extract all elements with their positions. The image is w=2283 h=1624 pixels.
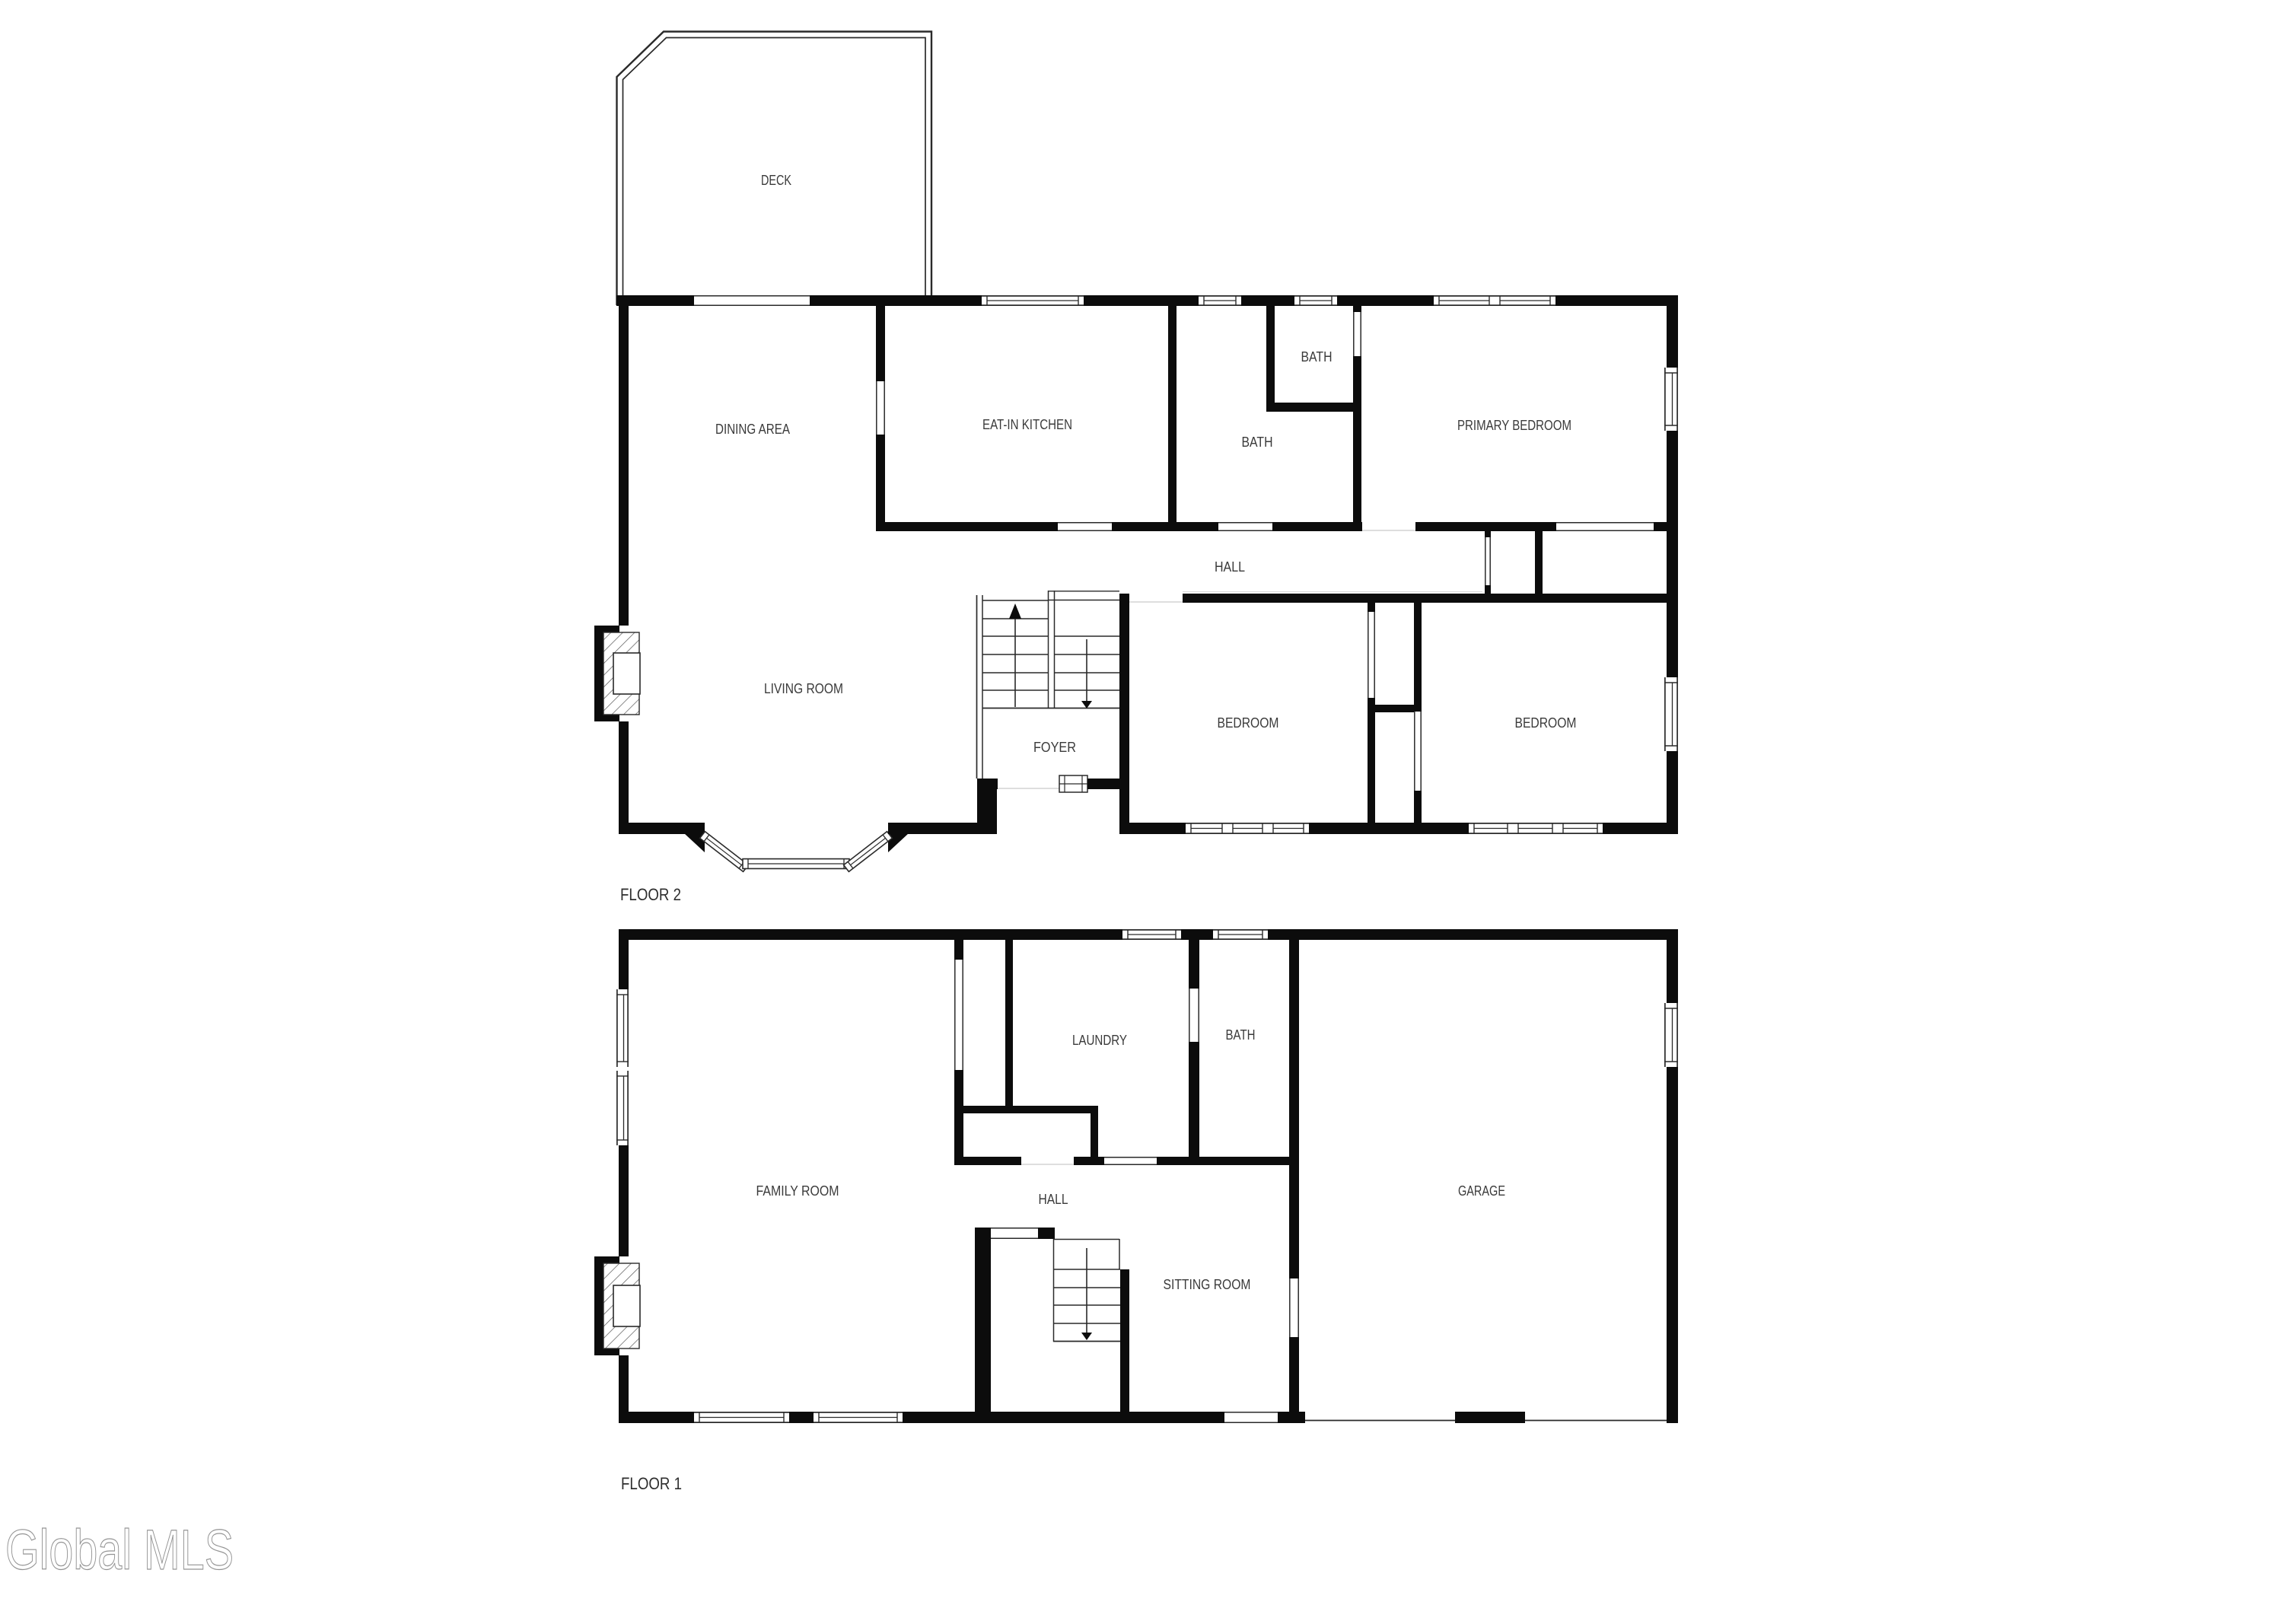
svg-text:GARAGE: GARAGE (1458, 1183, 1505, 1199)
svg-text:DINING AREA: DINING AREA (715, 422, 790, 437)
svg-text:FLOOR 2: FLOOR 2 (620, 885, 681, 904)
svg-text:HALL: HALL (1039, 1192, 1068, 1207)
svg-text:SITTING ROOM: SITTING ROOM (1164, 1277, 1251, 1292)
svg-text:BATH: BATH (1242, 435, 1273, 450)
svg-text:FLOOR 1: FLOOR 1 (621, 1474, 682, 1493)
svg-text:FAMILY ROOM: FAMILY ROOM (756, 1183, 839, 1199)
svg-text:HALL: HALL (1215, 559, 1245, 575)
svg-text:FOYER: FOYER (1033, 740, 1076, 755)
svg-text:LIVING ROOM: LIVING ROOM (764, 681, 843, 696)
svg-text:LAUNDRY: LAUNDRY (1072, 1033, 1127, 1048)
svg-text:EAT-IN KITCHEN: EAT-IN KITCHEN (982, 417, 1072, 432)
svg-text:BEDROOM: BEDROOM (1515, 715, 1577, 731)
svg-text:DECK: DECK (761, 173, 791, 188)
svg-text:PRIMARY BEDROOM: PRIMARY BEDROOM (1457, 418, 1571, 433)
svg-text:BEDROOM: BEDROOM (1218, 715, 1279, 731)
svg-text:Global MLS: Global MLS (5, 1518, 234, 1581)
svg-text:BATH: BATH (1226, 1027, 1256, 1043)
svg-text:BATH: BATH (1301, 349, 1333, 365)
